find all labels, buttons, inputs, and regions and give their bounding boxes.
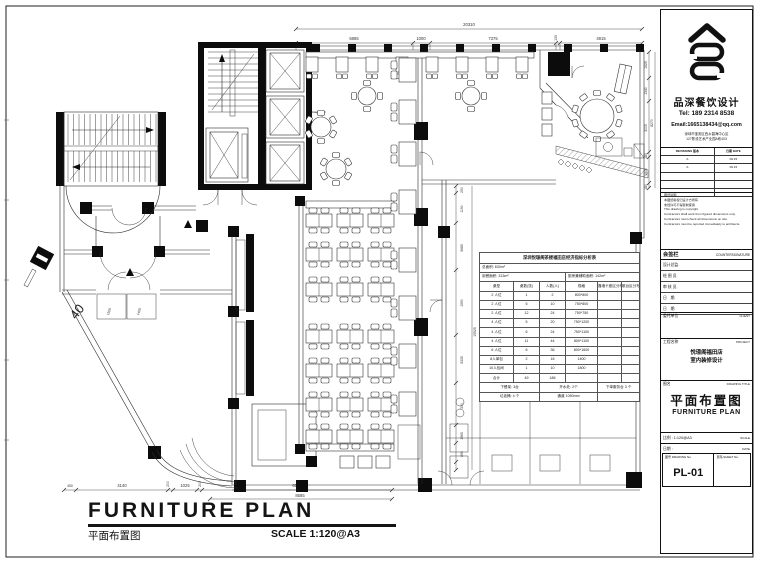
stats-cell: 6 [514, 346, 540, 355]
svg-text:3005: 3005 [644, 124, 648, 132]
kitchen-area: 厨房兼辅助面积: 142m² [566, 273, 640, 282]
revision-row: A09.15 [661, 156, 752, 164]
stats-cell: 16 [540, 355, 566, 364]
stats-cell [622, 355, 640, 364]
table-row: 合计49186 [480, 374, 640, 383]
stats-cell: 12 [514, 309, 540, 318]
svg-text:6885: 6885 [349, 36, 359, 41]
plan-scale: SCALE 1:120@A3 [271, 528, 360, 543]
stats-cell: 800*1100 [566, 337, 598, 346]
svg-text:180: 180 [644, 153, 648, 159]
company-email: Email:1665138434@qq.com [661, 122, 752, 132]
svg-text:8270: 8270 [650, 119, 654, 127]
title-block: 品深餐饮设计 Tel: 189 2314 8538 Email:16651384… [660, 9, 753, 554]
table-row: 2 人位1224750*750 [480, 309, 640, 318]
stats-cell: 4 人位 [480, 319, 514, 328]
svg-text:135: 135 [554, 35, 558, 41]
stats-cell: 8人单包 [480, 355, 514, 364]
stats-cell: 2 [540, 291, 566, 300]
general-notes: 图纸说明:本图纸版权归设计方所有未经许可不得复制使用This drawing i… [661, 193, 752, 249]
stats-cell: 6 [514, 328, 540, 337]
date-value: 日期 : [663, 447, 673, 452]
table-row: 2 人位510750*800 [480, 300, 640, 309]
client-field: 委托单位CLIENT [661, 312, 752, 338]
svg-text:1340: 1340 [644, 87, 648, 95]
economic-indicator-table: 深圳悦璟阁茶楼福田店经济指标分析表 总面积: 630m² 用餐面积: 313m²… [479, 252, 640, 402]
stats-cell: 1 [514, 291, 540, 300]
floor-plan: 20310 6885 1000 7375 135 4915 1525 1340 … [0, 0, 760, 564]
table-title: 深圳悦璟阁茶楼福田店经济指标分析表 [480, 253, 640, 264]
svg-text:1025: 1025 [180, 483, 190, 488]
revision-row [661, 181, 752, 189]
company-logo [661, 10, 752, 94]
stats-cell: 2 [514, 355, 540, 364]
signature-row: 审 核 员. [661, 282, 752, 293]
stats-cell [598, 309, 622, 318]
company-tel: Tel: 189 2314 8538 [661, 110, 752, 122]
svg-text:5685: 5685 [460, 244, 464, 252]
grand-staircase [56, 112, 166, 233]
stats-cell [622, 291, 640, 300]
stats-cell [622, 337, 640, 346]
table-row: 4 人位624750*1100 [480, 328, 640, 337]
stats-cell: 800*800 [566, 291, 598, 300]
stats-cell: 750*1100 [566, 328, 598, 337]
svg-text:4915: 4915 [596, 36, 606, 41]
stats-cell: 5 [514, 319, 540, 328]
door-label-b: 1400 [136, 307, 142, 316]
stats-cell: 10 [540, 365, 566, 374]
stats-cell [566, 374, 598, 383]
stats-cell: 750*1200 [566, 319, 598, 328]
table-row: 4 人位520750*1200 [480, 319, 640, 328]
stats-cell: 750*800 [566, 300, 598, 309]
stats-cell: 800*1600 [566, 346, 598, 355]
drawing-number: PL-01 [663, 459, 713, 486]
signature-row: 日 期. [661, 293, 752, 304]
stats-cell [598, 319, 622, 328]
stats-cell: 10 [540, 300, 566, 309]
area-40-label: 40 [67, 301, 88, 322]
table-body: 2 人位12800*8002 人位510750*8002 人位1224750*7… [480, 291, 640, 383]
signature-rows: 设计总监.绘 图 员.审 核 员.日 期.日 期. [661, 260, 752, 312]
svg-text:1965: 1965 [460, 432, 464, 440]
stats-cell [622, 309, 640, 318]
stats-cell: 4 人位 [480, 328, 514, 337]
svg-text:5335: 5335 [460, 356, 464, 364]
svg-text:1190: 1190 [460, 205, 464, 212]
door-label-a: 1500 [106, 307, 112, 316]
stats-cell [598, 355, 622, 364]
stats-cell: 2 人位 [480, 291, 514, 300]
company-name: 品深餐饮设计 [661, 94, 752, 110]
dimension-bottom: 450 4140 200 1025 200 6500 8585 [62, 481, 394, 501]
drawing-number-box: 图号 DRAWING No. PL-01 页码 SHEET No. [662, 453, 751, 487]
svg-text:180: 180 [644, 184, 648, 190]
stats-cell [622, 346, 640, 355]
stats-cell [622, 328, 640, 337]
dining-area: 用餐面积: 313m² [480, 273, 566, 282]
svg-text:1590: 1590 [460, 299, 464, 307]
stats-cell: 5 [514, 300, 540, 309]
svg-text:15925: 15925 [473, 327, 477, 337]
stats-cell [622, 300, 640, 309]
table-header-row: 桌型 桌数(张) 人数(人) 规格 靠墙卡座区分布 散台区分布 [480, 282, 640, 291]
table-footer-row-1: 下餐架: 3台 开水处: 2个 下单服务台 3 个 [480, 383, 640, 392]
stats-cell: 10人包间 [480, 365, 514, 374]
plan-title-zh: 平面布置图 [88, 528, 141, 543]
stats-cell: 2 人位 [480, 300, 514, 309]
stats-cell [622, 374, 640, 383]
signature-row: 设计总监. [661, 260, 752, 271]
signature-row: 绘 图 员. [661, 271, 752, 282]
stats-cell [622, 365, 640, 374]
logo-icon [679, 19, 735, 85]
svg-text:1525: 1525 [644, 61, 648, 69]
svg-text:7375: 7375 [488, 36, 498, 41]
scale-date-rows: 比例 : 1:120@A3SCALE 日期 :DATE [661, 432, 752, 452]
entrance: 1500 1400 40 [24, 208, 192, 322]
stats-cell: 750*750 [566, 309, 598, 318]
stats-cell: 49 [514, 374, 540, 383]
stats-cell: 24 [540, 328, 566, 337]
svg-text:8585: 8585 [295, 493, 305, 498]
stats-cell [598, 337, 622, 346]
drawing-sheet: 20310 6885 1000 7375 135 4915 1525 1340 … [0, 0, 760, 564]
revisions-table: REVISIONS 版本日期 DATE A09.15A09.15 [661, 147, 752, 193]
stats-cell [598, 291, 622, 300]
stats-cell [598, 346, 622, 355]
plan-title-en: FURNITURE PLAN [88, 499, 396, 527]
stats-cell: 24 [540, 309, 566, 318]
stats-cell [598, 300, 622, 309]
project-name-line1: 悦璟阁福田店 [661, 349, 752, 357]
svg-text:450: 450 [67, 484, 73, 488]
stats-cell: 1800 [566, 365, 598, 374]
stats-cell: 4 人位 [480, 337, 514, 346]
revision-row: A09.15 [661, 164, 752, 172]
svg-text:1000: 1000 [416, 36, 426, 41]
drawing-title-zh: 平面布置图 [661, 390, 752, 409]
table-row: 4 人位1144800*1100 [480, 337, 640, 346]
stats-cell [598, 365, 622, 374]
stats-cell: 186 [540, 374, 566, 383]
svg-text:4140: 4140 [117, 483, 127, 488]
revision-row [661, 173, 752, 181]
svg-text:250: 250 [460, 187, 464, 193]
table-footer-row-2: 垃圾桶: 4 个 通道 1050mm [480, 392, 640, 401]
stats-cell: 44 [540, 337, 566, 346]
company-address: 深圳市宝安区西乡碧海中心区 127陈设艺术产业园A栋403 [661, 132, 752, 147]
note-line: Contractors must be reported immediately… [664, 222, 749, 227]
stats-cell: 1 [514, 365, 540, 374]
stats-cell: 1400 [566, 355, 598, 364]
stats-cell: 6 人位 [480, 346, 514, 355]
project-field: 工程名称PROJECT 悦璟阁福田店 室内装修设计 [661, 338, 752, 380]
project-name-line2: 室内装修设计 [661, 357, 752, 365]
total-area: 总面积: 630m² [480, 264, 640, 273]
stats-cell: 20 [540, 319, 566, 328]
stats-cell: 合计 [480, 374, 514, 383]
scale-value: 比例 : 1:120@A3 [663, 436, 692, 441]
table-row: 6 人位636800*1600 [480, 346, 640, 355]
stats-cell: 36 [540, 346, 566, 355]
stats-cell [622, 319, 640, 328]
stats-cell [598, 374, 622, 383]
stats-cell [598, 328, 622, 337]
table-row: 10人包间1101800 [480, 365, 640, 374]
stats-cell: 11 [514, 337, 540, 346]
drawing-title-field: 图名DRAWING TITLE 平面布置图 FURNITURE PLAN [661, 380, 752, 432]
table-row: 8人单包2161400 [480, 355, 640, 364]
stats-cell: 2 人位 [480, 309, 514, 318]
drawing-title-en: FURNITURE PLAN [661, 409, 752, 416]
table-row: 2 人位12800*800 [480, 291, 640, 300]
svg-text:200: 200 [166, 481, 170, 487]
dimension-middle: 250 1190 5685 1590 5335 300 1965 890 159… [454, 184, 477, 472]
countersignature-bar: 会签栏 COUNTERSIGNATURE [661, 249, 752, 260]
svg-text:20310: 20310 [463, 22, 475, 27]
dimension-right: 1525 1340 3005 180 1500 180 8270 [644, 50, 655, 190]
